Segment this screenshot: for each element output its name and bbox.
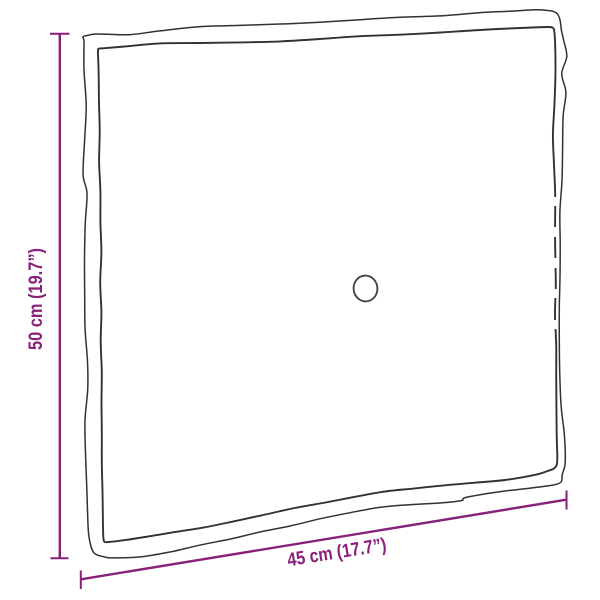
svg-text:45 cm (17.7”): 45 cm (17.7”) (286, 535, 388, 572)
svg-text:50 cm (19.7”): 50 cm (19.7”) (26, 248, 47, 350)
